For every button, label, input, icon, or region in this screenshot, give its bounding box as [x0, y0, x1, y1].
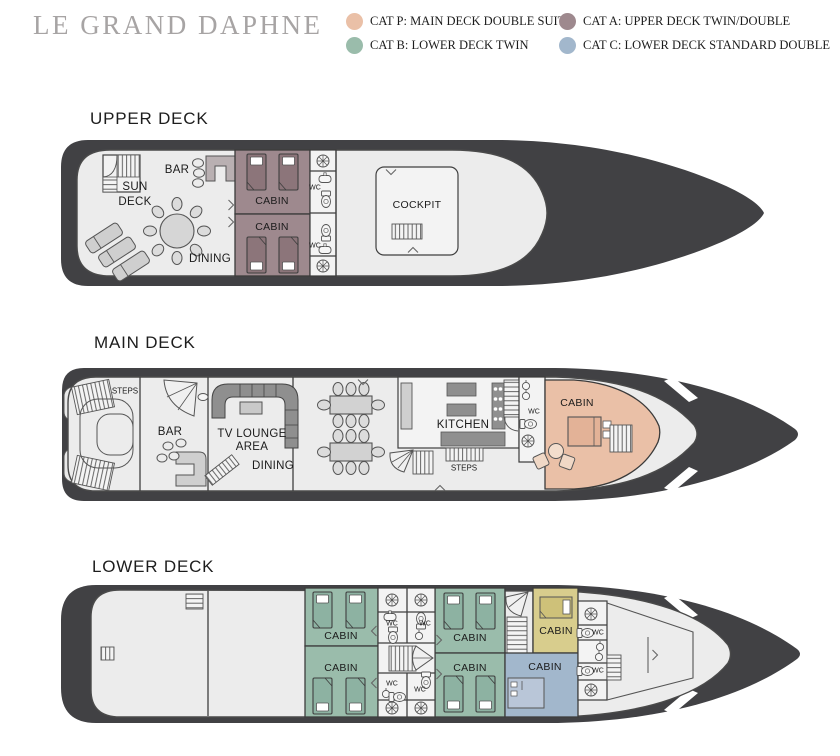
label-main-cabin: CABIN	[560, 397, 594, 409]
label-upper-cabin-1: CABIN	[255, 195, 289, 207]
label-upper-cabin-2: CABIN	[255, 221, 289, 233]
tv-icon	[240, 402, 262, 414]
label-kitchen: KITCHEN	[437, 419, 490, 431]
upper-deck-plan	[0, 130, 840, 300]
legend-item-cat-p: CAT P: MAIN DECK DOUBLE SUITE	[346, 13, 573, 30]
label-tv-lounge-1: TV LOUNGE	[217, 428, 286, 440]
bow-stairs-icon	[607, 655, 621, 680]
label-lower-cabin-3: CABIN	[453, 632, 487, 644]
label-lower-wc-1: WC	[386, 621, 398, 628]
legend-swatch-cat-b-icon	[346, 37, 363, 54]
label-main-dining: DINING	[252, 460, 294, 472]
lower-mid-wc-block	[378, 588, 435, 717]
main-deck-plan	[0, 360, 840, 510]
legend-label-cat-b: CAT B: LOWER DECK TWIN	[370, 38, 529, 53]
label-upper-wc-2: WC	[309, 243, 321, 250]
label-stern-steps: STEPS	[112, 387, 138, 396]
label-sun-deck-2: DECK	[118, 196, 151, 208]
label-cockpit: COCKPIT	[393, 199, 442, 211]
mid-steps-icon	[446, 448, 483, 461]
label-lower-wc-4: WC	[414, 687, 426, 694]
lower-deck-heading: LOWER DECK	[92, 557, 214, 577]
label-lower-cabin-4: CABIN	[453, 662, 487, 674]
mid-stairs-icon	[389, 646, 416, 671]
legend-swatch-cat-a-icon	[559, 13, 576, 30]
legend-item-cat-b: CAT B: LOWER DECK TWIN	[346, 37, 529, 54]
legend-label-cat-c: CAT C: LOWER DECK STANDARD DOUBLE	[583, 38, 830, 53]
kitchen-stairs-icon	[504, 380, 519, 417]
lower-deck-plan	[0, 575, 840, 740]
label-mid-steps: STEPS	[451, 464, 477, 473]
label-tv-lounge-2: AREA	[236, 441, 269, 453]
label-lower-wc-2: WC	[419, 621, 431, 628]
legend-swatch-cat-p-icon	[346, 13, 363, 30]
hatch-icon	[186, 594, 203, 609]
helm-console-icon	[392, 224, 422, 239]
lower-cabin-crew	[533, 588, 578, 653]
upper-wc-cells	[310, 150, 336, 276]
label-lower-wc-6: WC	[592, 668, 604, 675]
lower-right-wc-column	[577, 601, 607, 700]
legend-label-cat-p: CAT P: MAIN DECK DOUBLE SUITE	[370, 14, 573, 29]
label-lower-wc-5: WC	[592, 630, 604, 637]
main-deck-heading: MAIN DECK	[94, 333, 196, 353]
label-sun-deck-1: SUN	[122, 181, 147, 193]
legend-item-cat-a: CAT A: UPPER DECK TWIN/DOUBLE	[559, 13, 790, 30]
label-upper-dining: DINING	[189, 253, 231, 265]
deck-plan-page: LE GRAND DAPHNE CAT P: MAIN DECK DOUBLE …	[0, 0, 840, 756]
label-main-bar: BAR	[158, 426, 183, 438]
cabin-stairs-icon	[610, 425, 632, 452]
label-lower-cabin-1: CABIN	[324, 630, 358, 642]
label-main-wc: WC	[528, 409, 540, 416]
cockpit-room	[376, 167, 458, 255]
label-upper-bar: BAR	[165, 164, 190, 176]
page-title: LE GRAND DAPHNE	[33, 10, 323, 41]
label-crew-cabin: CABIN	[539, 625, 573, 637]
legend-label-cat-a: CAT A: UPPER DECK TWIN/DOUBLE	[583, 14, 790, 29]
hatch-icon	[101, 647, 114, 660]
main-wc-room	[519, 377, 545, 462]
upper-deck-heading: UPPER DECK	[90, 109, 209, 129]
label-lower-wc-3: WC	[386, 681, 398, 688]
legend-swatch-cat-c-icon	[559, 37, 576, 54]
label-lower-cabin-2: CABIN	[324, 662, 358, 674]
legend-item-cat-c: CAT C: LOWER DECK STANDARD DOUBLE	[559, 37, 830, 54]
double-bed-icon	[568, 417, 601, 446]
label-upper-wc-1: WC	[309, 185, 321, 192]
label-lower-cabin-c: CABIN	[528, 661, 562, 673]
lower-cabin-cat-b-2	[305, 646, 378, 717]
